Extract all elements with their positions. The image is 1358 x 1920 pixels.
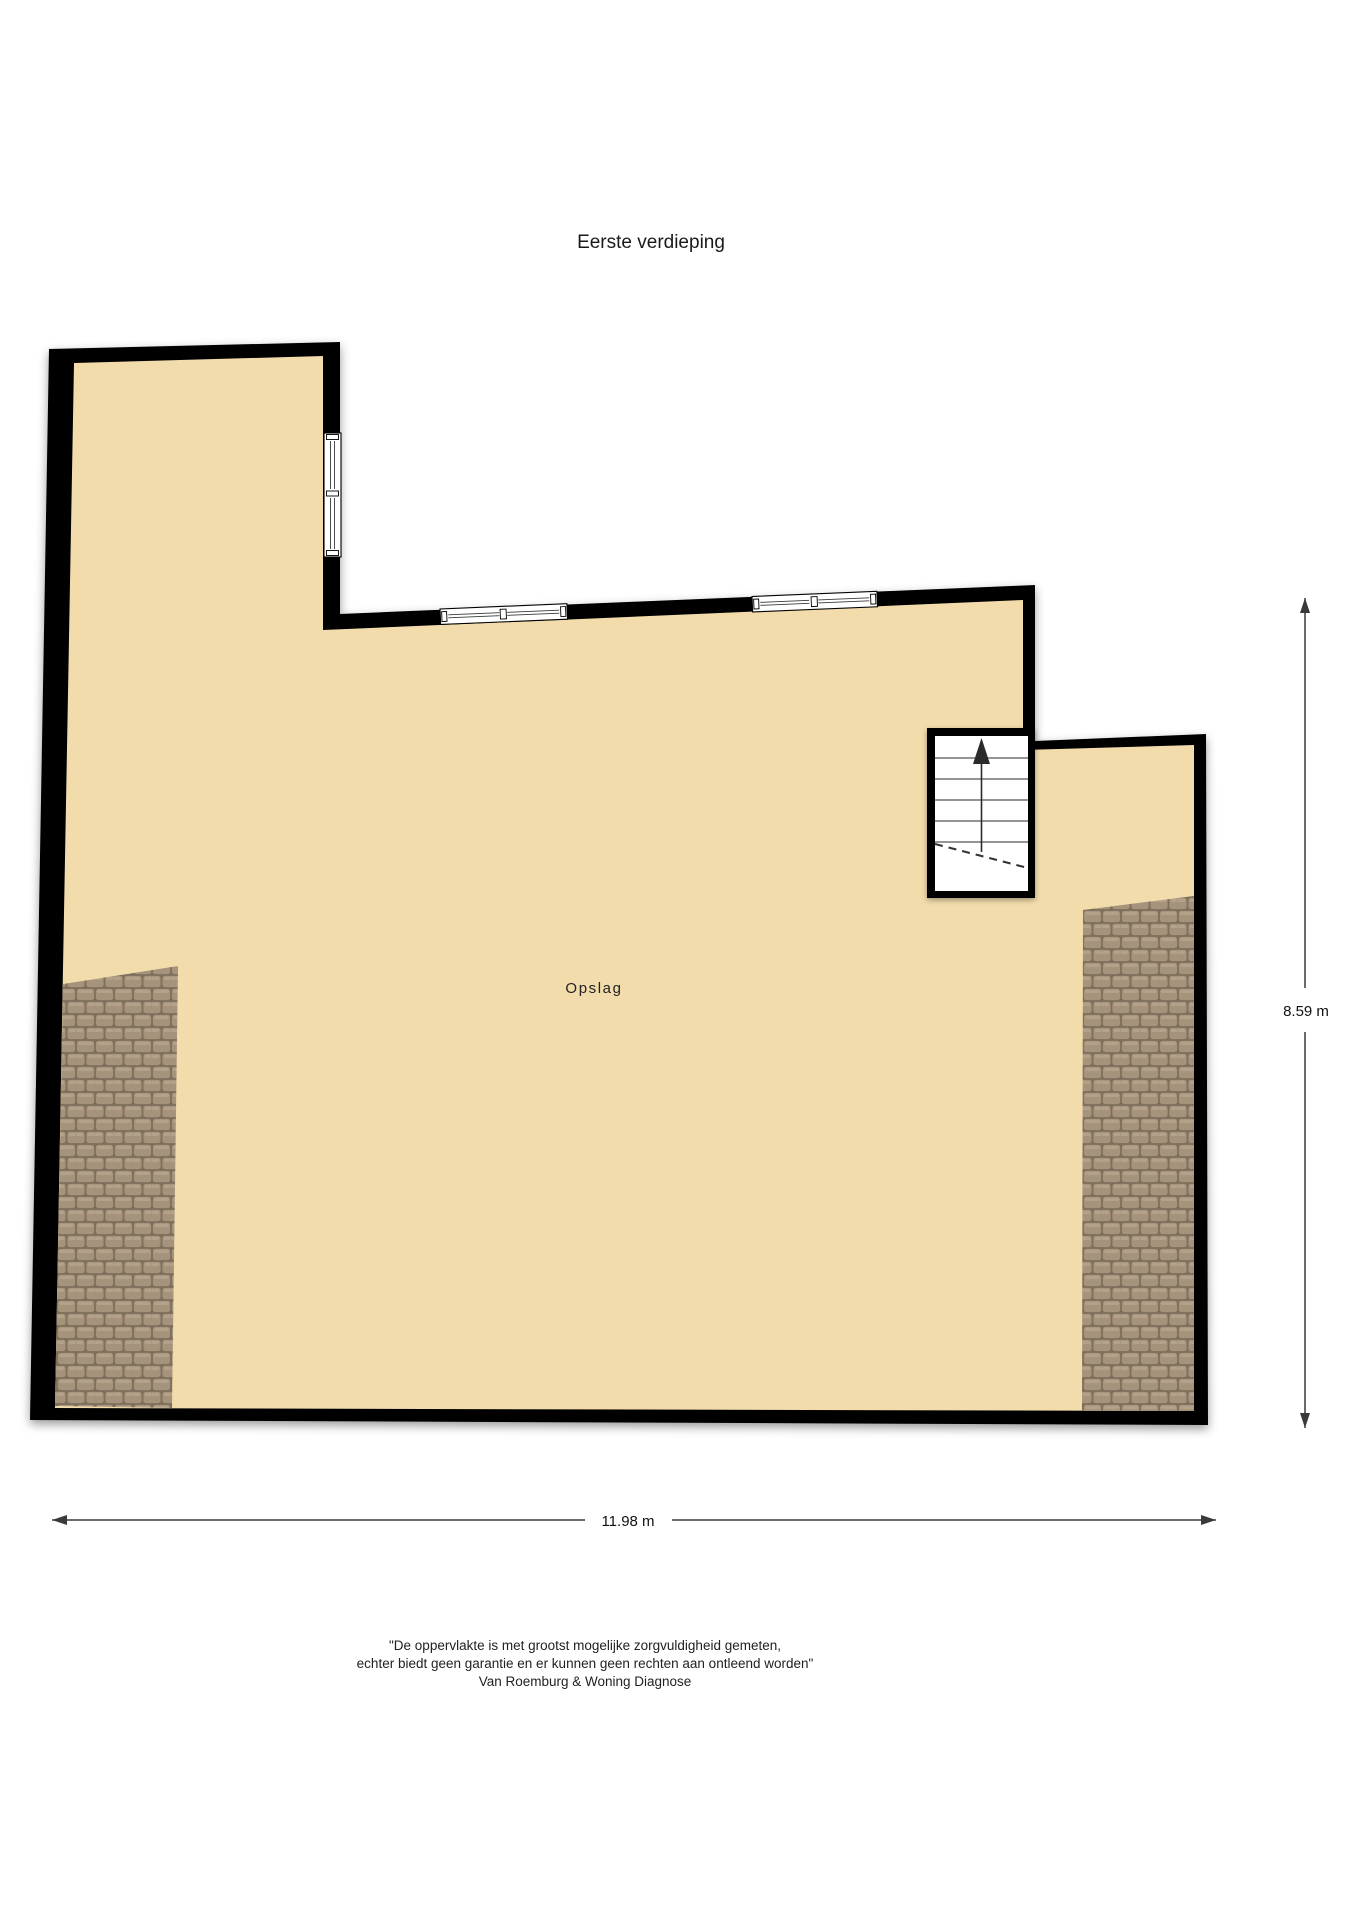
roof-tile-strip-right xyxy=(1082,896,1194,1411)
dimension-arrow-up-icon xyxy=(1300,598,1310,613)
dimension-width: 11.98 m xyxy=(52,1513,1216,1530)
disclaimer-line-2: echter biedt geen garantie en er kunnen … xyxy=(357,1656,814,1671)
disclaimer-line-3: Van Roemburg & Woning Diagnose xyxy=(479,1674,692,1689)
disclaimer-line-1: "De oppervlakte is met grootst mogelijke… xyxy=(389,1638,781,1653)
disclaimer: "De oppervlakte is met grootst mogelijke… xyxy=(357,1638,814,1689)
height-dimension-label: 8.59 m xyxy=(1283,1003,1329,1020)
width-dimension-label: 11.98 m xyxy=(601,1513,654,1530)
dimension-arrow-down-icon xyxy=(1300,1413,1310,1428)
floor-plan: Opslag xyxy=(30,342,1208,1425)
page-title: Eerste verdieping xyxy=(577,232,725,253)
dimension-arrow-right-icon xyxy=(1201,1515,1216,1525)
window-left-section xyxy=(324,433,341,557)
roof-tile-strip-left xyxy=(55,966,178,1408)
stairwell xyxy=(927,728,1035,898)
floor-plan-image: Eerste verdieping xyxy=(0,0,1358,1920)
dimension-height: 8.59 m xyxy=(1283,598,1329,1428)
room-label: Opslag xyxy=(565,980,622,997)
dimension-arrow-left-icon xyxy=(52,1515,67,1525)
